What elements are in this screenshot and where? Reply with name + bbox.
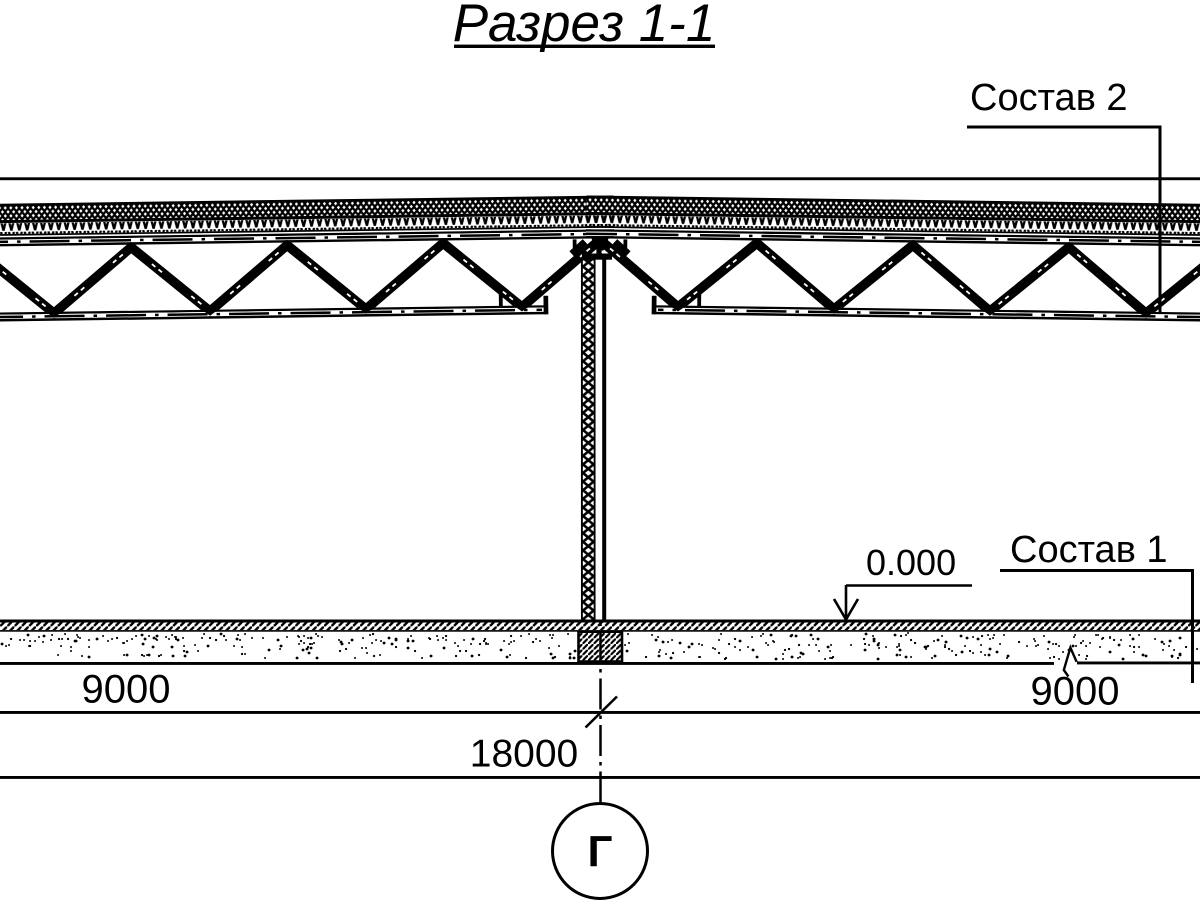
svg-text:Состав 1: Состав 1 <box>1010 529 1168 571</box>
svg-text:18000: 18000 <box>470 733 578 776</box>
svg-text:Состав 2: Состав 2 <box>970 77 1128 119</box>
svg-text:0.000: 0.000 <box>866 542 956 583</box>
svg-text:9000: 9000 <box>82 668 171 712</box>
svg-text:Г: Г <box>588 827 613 876</box>
svg-text:9000: 9000 <box>1031 670 1120 714</box>
